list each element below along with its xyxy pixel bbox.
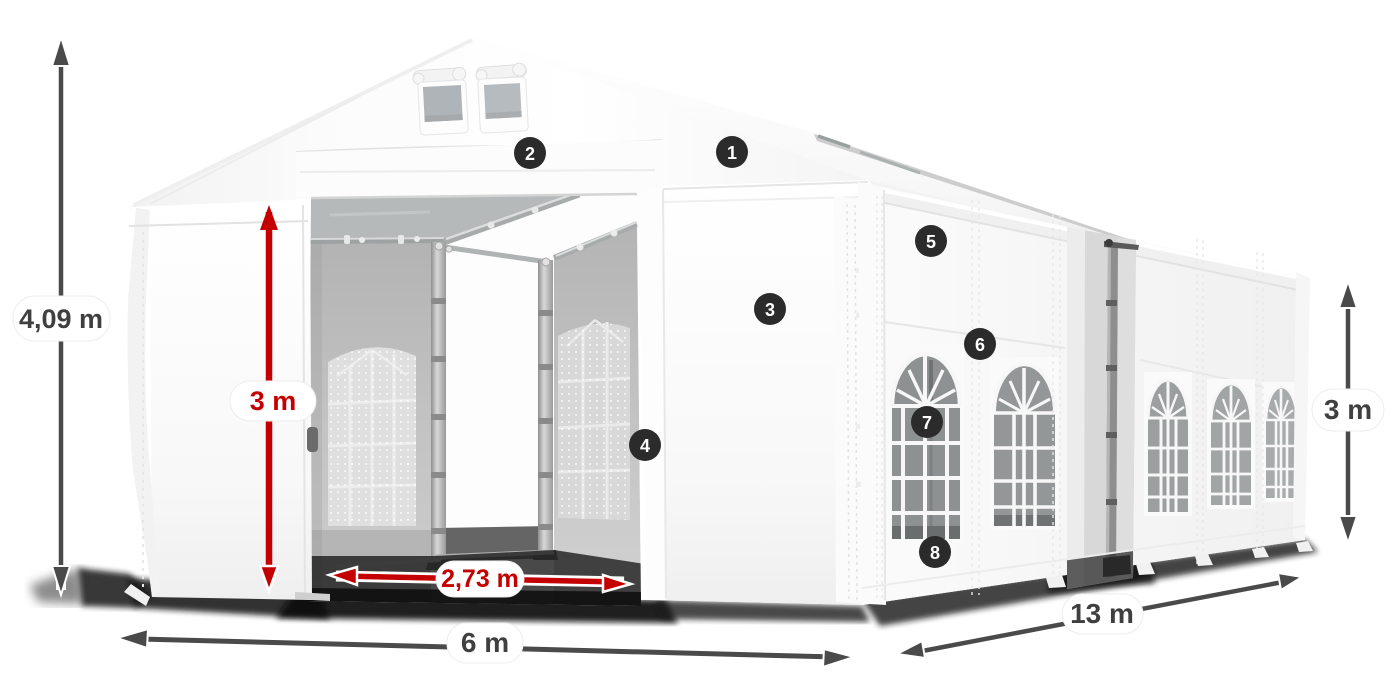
- svg-text:4,09 m: 4,09 m: [19, 304, 103, 334]
- svg-text:2: 2: [525, 144, 535, 164]
- svg-text:2,73 m: 2,73 m: [441, 565, 519, 593]
- svg-text:3 m: 3 m: [250, 386, 297, 416]
- svg-text:4: 4: [640, 436, 650, 456]
- svg-text:3 m: 3 m: [1324, 394, 1372, 425]
- svg-text:6 m: 6 m: [461, 627, 509, 658]
- svg-text:7: 7: [922, 413, 932, 433]
- svg-text:8: 8: [930, 543, 940, 563]
- svg-text:13 m: 13 m: [1070, 598, 1134, 629]
- svg-text:3: 3: [765, 300, 775, 320]
- svg-text:5: 5: [926, 232, 936, 252]
- svg-text:1: 1: [727, 143, 737, 163]
- svg-text:6: 6: [975, 335, 985, 355]
